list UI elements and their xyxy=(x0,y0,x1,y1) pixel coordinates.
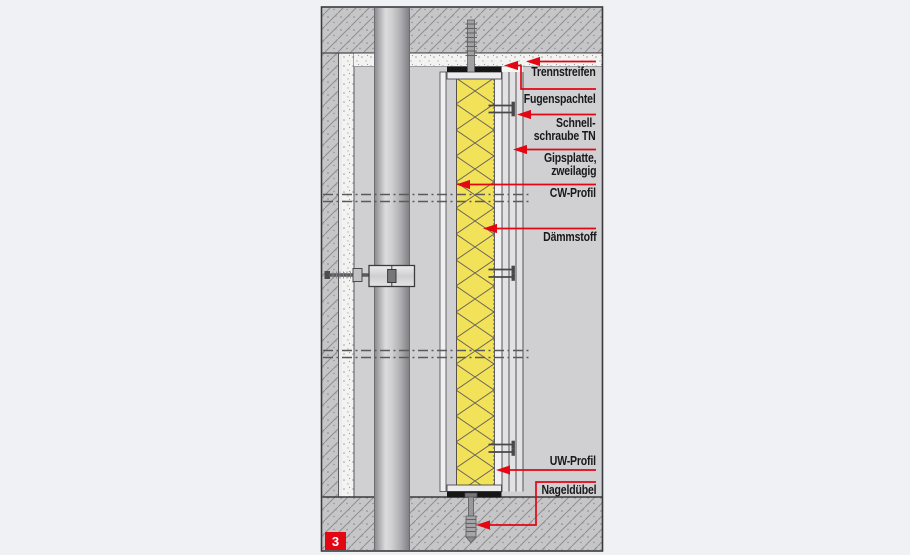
cw-profile-front-flange xyxy=(495,72,503,492)
gypsum-boards-two-layers xyxy=(502,72,523,492)
ceiling-slab xyxy=(323,8,603,67)
label-fugenspachtel: Fugenspachtel xyxy=(524,93,596,106)
label-gipsplatte: Gipsplatte, zweilagig xyxy=(544,152,596,178)
uw-profile-bottom xyxy=(447,485,502,492)
label-gipsplatte-line2: zweilagig xyxy=(544,165,596,178)
label-daemmstoff: Dämmstoff xyxy=(543,231,596,244)
cw-profile-back-flange xyxy=(440,72,446,492)
label-trennstreifen: Trennstreifen xyxy=(532,66,596,79)
label-schnellschraube-line2: schraube TN xyxy=(534,130,596,143)
wall-section-drawing xyxy=(0,0,910,555)
figure-number-badge: 3 xyxy=(325,532,346,550)
insulation-daemmstoff xyxy=(457,79,495,485)
label-schnellschraube: Schnell- schraube TN xyxy=(534,117,596,143)
construction-detail-figure: Trennstreifen Fugenspachtel Schnell- sch… xyxy=(0,0,910,555)
label-uw-profil: UW-Profil xyxy=(550,455,596,468)
uw-profile-top xyxy=(447,72,502,79)
label-nageldubel: Nageldübel xyxy=(541,484,596,497)
label-cw-profil: CW-Profil xyxy=(550,187,596,200)
floor-slab xyxy=(323,497,603,550)
